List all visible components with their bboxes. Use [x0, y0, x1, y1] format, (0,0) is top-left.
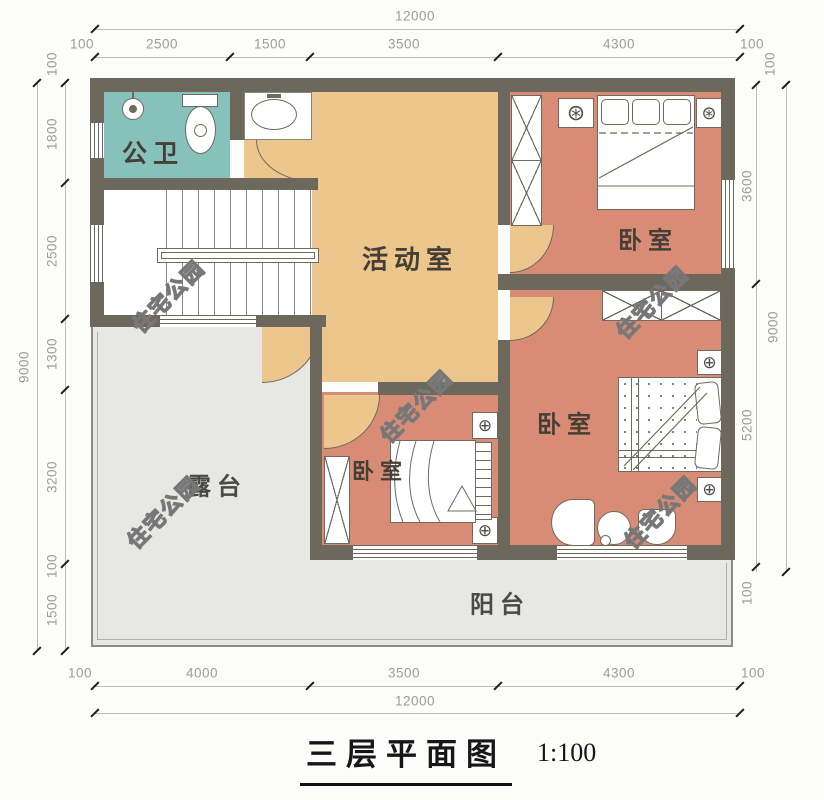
page-title: 三层平面图: [300, 729, 512, 786]
dim-bottom-seg: 4300: [603, 666, 635, 681]
dim-left-seg: 1300: [45, 338, 60, 370]
dim-left-seg: 2500: [45, 235, 60, 267]
window-stair-bottom-icon: [160, 315, 256, 327]
dim-tick: [781, 567, 790, 576]
dim-right-seg: 5200: [740, 409, 755, 441]
room-label-balcony: 阳台: [470, 585, 530, 620]
floor-plan: ⊛ ⊛ ⊕ ⊕ ⊕ ⊕: [0, 0, 824, 800]
balcony-railing-right: [731, 560, 733, 647]
shower-dot-icon: [129, 105, 137, 113]
dim-left-total: 9000: [17, 351, 32, 383]
wall-bathroom-right: [230, 92, 244, 140]
dim-right-seg: 3600: [740, 170, 755, 202]
dim-line: [95, 686, 740, 687]
terrace-railing-inner-left: [97, 332, 98, 640]
terrace-railing-left: [91, 327, 93, 647]
wardrobe-bedroom-top: [511, 95, 542, 226]
sink-basin-icon: [251, 99, 297, 130]
chair-icon: [551, 499, 595, 546]
dim-top-seg: 2500: [146, 37, 178, 52]
dim-top-seg: 1500: [254, 37, 286, 52]
toilet-flush-icon: [194, 124, 207, 137]
wall-bathroom-bottom: [90, 178, 318, 190]
dim-line: [786, 85, 787, 572]
terrace-balcony-railing-bottom: [91, 645, 733, 647]
wardrobe-bedroom-middle: [324, 456, 350, 544]
dim-tick: [32, 646, 41, 655]
dim-left-seg: 100: [45, 52, 60, 76]
dim-line: [95, 57, 740, 58]
wall-terrace-side: [310, 327, 322, 560]
pillow-icon: [694, 426, 722, 470]
dim-tick: [735, 52, 744, 61]
page-title-scale: 1:100: [537, 738, 596, 768]
pillow-icon: [601, 99, 629, 125]
dim-bottom-seg: 3500: [388, 666, 420, 681]
dim-tick: [735, 708, 744, 717]
dim-top-seg: 4300: [603, 37, 635, 52]
dim-left-seg: 100: [45, 554, 60, 578]
room-label-bedroom-right: 卧室: [537, 405, 597, 440]
dim-line: [37, 83, 38, 651]
bed-headboard-icon: [475, 442, 492, 520]
wall-left: [90, 78, 104, 327]
dim-bottom-seg: 100: [68, 666, 92, 681]
wall-top: [90, 78, 735, 92]
dim-right-seg: 100: [740, 581, 755, 605]
wall-right: [721, 78, 735, 560]
dim-tick: [735, 24, 744, 33]
dim-tick: [735, 681, 744, 690]
dim-right-total: 9000: [766, 311, 781, 343]
dim-line: [95, 29, 740, 30]
wall-bedroom-divider-h: [498, 274, 735, 290]
room-label-bedroom-top: 卧室: [618, 221, 678, 256]
window-bedroom-middle-icon: [353, 545, 477, 560]
dim-line: [756, 85, 757, 572]
room-label-bedroom-middle: 卧室: [352, 454, 408, 486]
pillow-icon: [632, 99, 660, 125]
fan-icon: ⊛: [558, 98, 594, 128]
table-knob-icon: [600, 535, 611, 546]
room-label-activity: 活动室: [362, 240, 458, 277]
dim-line: [65, 83, 66, 651]
lamp-icon: ⊕: [697, 350, 722, 375]
dim-top-seg: 3500: [388, 37, 420, 52]
dim-left-seg: 1500: [45, 594, 60, 626]
dim-right-seg: 100: [763, 52, 778, 76]
dim-top-seg: 100: [740, 37, 764, 52]
lamp-icon: ⊕: [472, 412, 498, 439]
dim-left-seg: 1800: [45, 118, 60, 150]
dim-tick: [60, 646, 69, 655]
sink-faucet-icon: [267, 94, 281, 98]
fan-icon: ⊛: [696, 98, 722, 128]
wall-corridor-top: [498, 92, 510, 225]
room-label-bathroom: 公卫: [122, 134, 184, 170]
pillow-icon: [694, 381, 722, 425]
window-bedroom-top-icon: [721, 180, 735, 268]
window-stairhall-icon: [90, 225, 104, 282]
railing-inner-bottom: [97, 639, 726, 640]
activity-room-floor: [312, 92, 498, 382]
window-bathroom-icon: [90, 123, 104, 158]
dim-bottom-seg: 4000: [186, 666, 218, 681]
dim-bottom-total: 12000: [395, 694, 435, 709]
pillow-icon: [663, 99, 691, 125]
dim-top-seg: 100: [70, 37, 94, 52]
wall-bedroom-divider-v: [498, 340, 510, 560]
window-bedroom-right-icon: [557, 545, 687, 560]
dim-bottom-seg: 100: [741, 666, 765, 681]
dim-left-seg: 3200: [45, 461, 60, 493]
shower-stem-icon: [132, 90, 134, 99]
dim-line: [95, 713, 740, 714]
dim-top-total: 12000: [395, 9, 435, 24]
balcony-railing-inner-right: [726, 563, 727, 640]
